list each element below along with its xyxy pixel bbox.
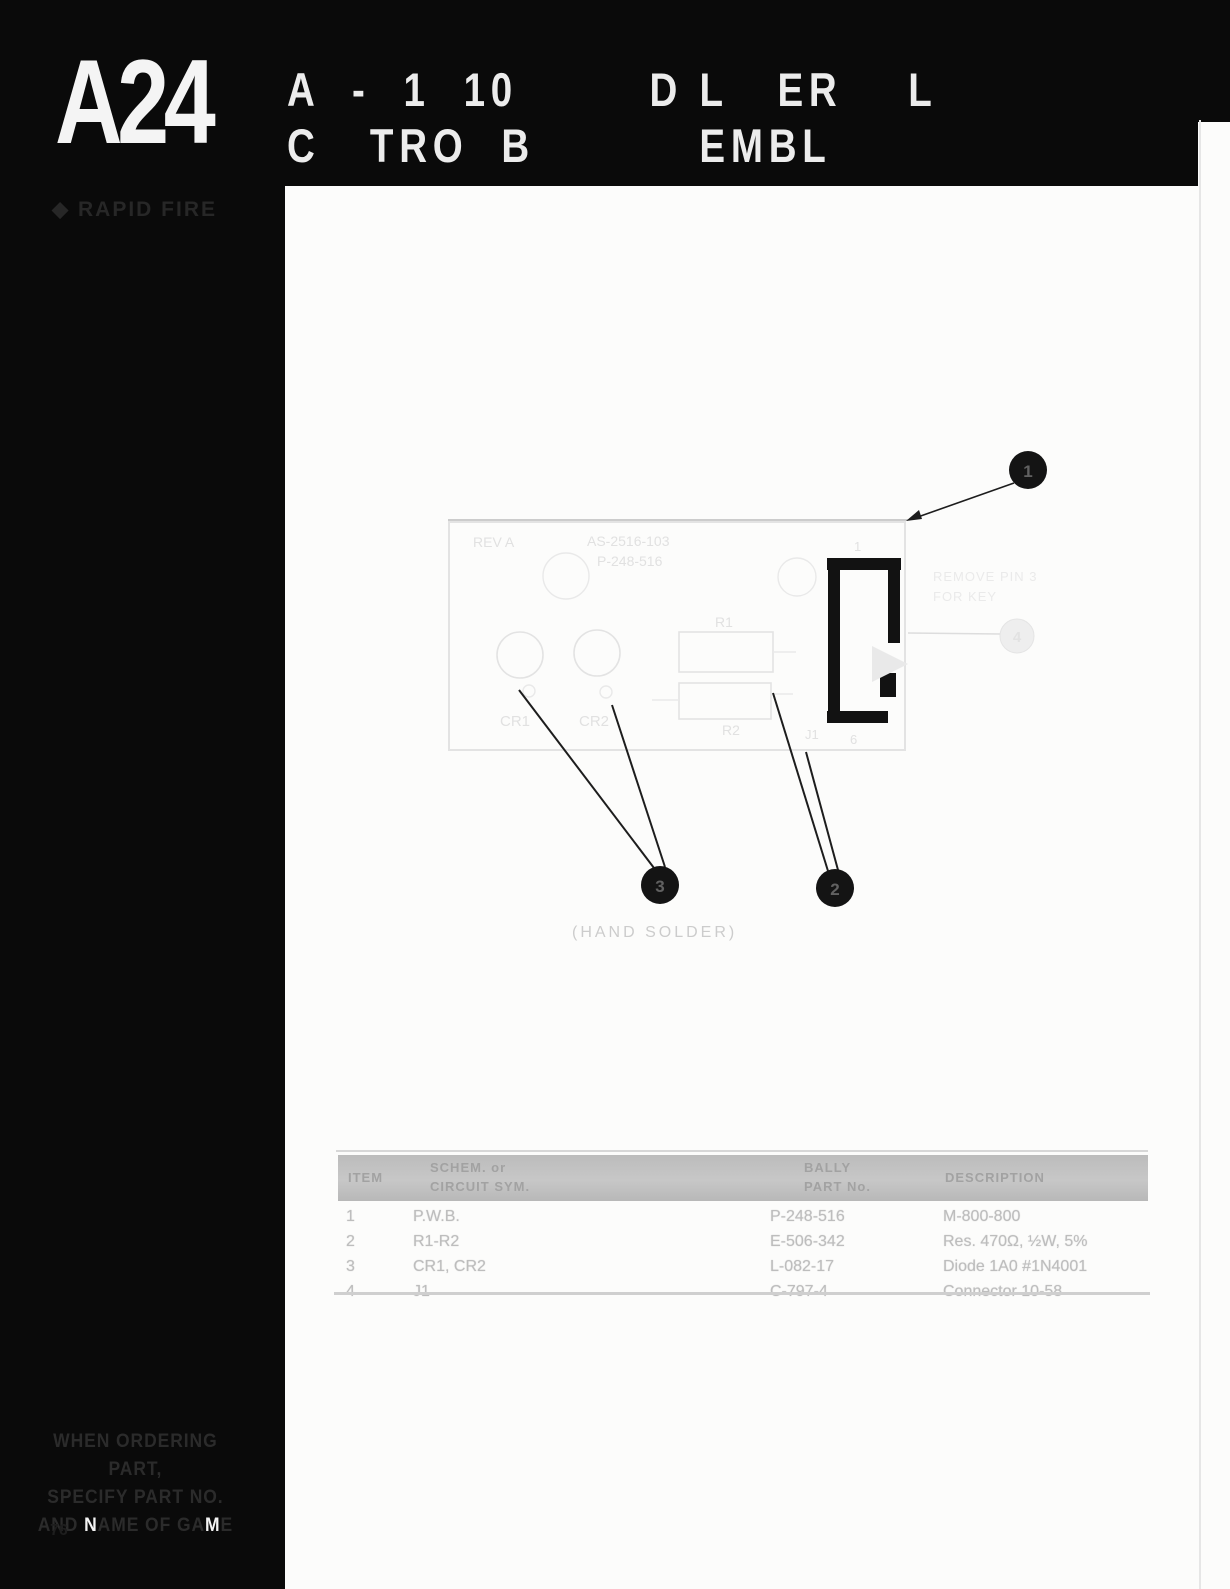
cell-part-number: L-082-17 xyxy=(770,1258,834,1276)
connector-note-line2: FOR KEY xyxy=(933,589,997,604)
game-name-label: ◆ RAPID FIRE xyxy=(52,197,217,222)
connector-note-line1: REMOVE PIN 3 xyxy=(933,569,1037,584)
cell-item: 1 xyxy=(346,1208,355,1226)
callout-1-arrow-line xyxy=(915,483,1014,518)
callout-1-number: 1 xyxy=(1023,462,1032,481)
cell-circuit: P.W.B. xyxy=(413,1208,460,1226)
table-row: 1 P.W.B. P-248-516 M-800-800 xyxy=(338,1208,1148,1232)
header-circuit-line2: CIRCUIT SYM. xyxy=(430,1179,530,1194)
table-body: 1 P.W.B. P-248-516 M-800-800 2 R1-R2 E-5… xyxy=(338,1204,1148,1304)
cell-item: 2 xyxy=(346,1233,355,1251)
table-row: 3 CR1, CR2 L-082-17 Diode 1A0 #1N4001 xyxy=(338,1258,1148,1282)
table-row: 4 J1 C-797-4 Connector 10-58 xyxy=(338,1283,1148,1307)
ordering-note-line1: WHEN ORDERING PART, xyxy=(25,1428,246,1484)
cell-part-number: P-248-516 xyxy=(770,1208,845,1226)
callout-2-leader-b xyxy=(806,752,838,870)
cell-part-number: E-506-342 xyxy=(770,1233,845,1251)
header-circuit-line1: SCHEM. or xyxy=(430,1160,506,1175)
callout-2-number: 2 xyxy=(830,880,839,899)
ordering-note-line2: SPECIFY PART NO. xyxy=(25,1484,246,1512)
page-title-line1: A - 1 10 D L ER L xyxy=(287,66,938,113)
left-black-sidebar xyxy=(0,0,285,1589)
cell-description: M-800-800 xyxy=(943,1208,1020,1226)
page-title-line2: C TRO B EMBL xyxy=(287,122,832,169)
pcb-board-outline xyxy=(448,521,906,751)
page-edge-scan-line xyxy=(1199,120,1201,1589)
cell-description: Diode 1A0 #1N4001 xyxy=(943,1258,1087,1276)
callout-4-circle xyxy=(1000,619,1034,653)
callout-1-circle xyxy=(1009,451,1047,489)
page-number: 76 xyxy=(50,1522,68,1540)
header-part-line2: PART No. xyxy=(804,1179,871,1194)
header-description: DESCRIPTION xyxy=(945,1170,1045,1185)
scanned-manual-page: A24 A - 1 10 D L ER L C TRO B EMBL ◆ RAP… xyxy=(0,0,1230,1589)
table-bottom-rule xyxy=(334,1292,1150,1295)
table-header-bar: ITEM SCHEM. or CIRCUIT SYM. BALLY PART N… xyxy=(338,1155,1148,1201)
cell-circuit: CR1, CR2 xyxy=(413,1258,486,1276)
table-top-rule xyxy=(336,1150,1148,1152)
section-code: A24 xyxy=(55,42,210,162)
cell-circuit: R1-R2 xyxy=(413,1233,459,1251)
callout-2-circle xyxy=(816,869,854,907)
callout-3-number: 3 xyxy=(655,877,664,896)
callout-4-leader xyxy=(908,633,1000,634)
cell-description: Res. 470Ω, ½W, 5% xyxy=(943,1233,1087,1251)
callout-4-number: 4 xyxy=(1013,629,1022,646)
header-item: ITEM xyxy=(348,1170,383,1185)
callout-3-circle xyxy=(641,866,679,904)
table-row: 2 R1-R2 E-506-342 Res. 470Ω, ½W, 5% xyxy=(338,1233,1148,1257)
hand-solder-note: (HAND SOLDER) xyxy=(572,924,737,941)
header-part-line1: BALLY xyxy=(804,1160,851,1175)
callout-1-arrowhead xyxy=(906,510,922,521)
cell-item: 3 xyxy=(346,1258,355,1276)
